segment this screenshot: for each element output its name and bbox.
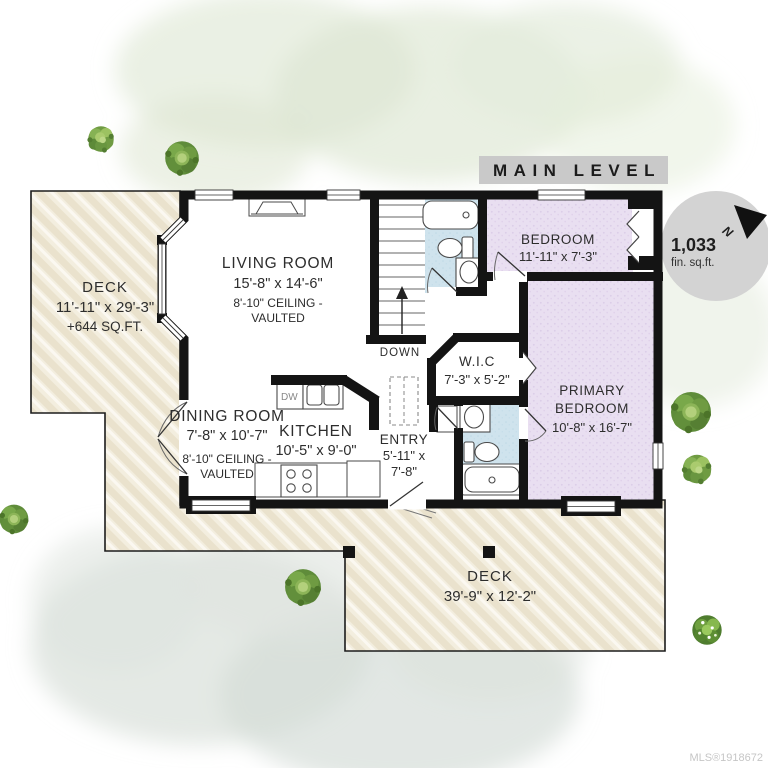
wic-dims: 7'-3" x 5'-2"	[444, 372, 510, 387]
wic-label: W.I.C	[459, 354, 495, 369]
deck-left-dims: 11'-11" x 29'-3"	[56, 299, 154, 316]
window	[653, 443, 663, 469]
dishwasher: DW	[277, 383, 303, 409]
window	[567, 501, 615, 512]
floorplan-page: N 1,033 fin. sq.ft.	[0, 0, 768, 768]
stairs-down-label: DOWN	[380, 347, 420, 359]
finished-area-unit: fin. sq.ft.	[671, 257, 714, 269]
tree-icon	[692, 615, 721, 644]
entry-dims2: 7'-8"	[391, 464, 417, 479]
kitchen-label: KITCHEN	[279, 423, 353, 440]
bathroom2-sink	[460, 402, 490, 432]
dining-room-ceiling2: VAULTED	[200, 467, 254, 481]
deck-post	[483, 546, 495, 558]
compass: N 1,033 fin. sq.ft.	[661, 191, 768, 301]
primary-bedroom-label2: BEDROOM	[555, 401, 629, 416]
dining-room-dims: 7'-8" x 10'-7"	[186, 428, 267, 444]
window	[538, 190, 585, 200]
bedroom-dims: 11'-11" x 7'-3"	[519, 249, 597, 264]
page-title: MAIN LEVEL	[493, 161, 661, 180]
deck-post	[343, 546, 355, 558]
bedroom-label: BEDROOM	[521, 232, 595, 247]
window	[327, 190, 360, 200]
toilet	[464, 442, 499, 462]
dining-room-label: DINING ROOM	[169, 408, 285, 425]
living-room-label: LIVING ROOM	[222, 255, 334, 272]
bathtub	[423, 201, 478, 229]
deck-left-label: DECK	[82, 279, 128, 296]
primary-bedroom-dims: 10'-8" x 16'-7"	[552, 420, 632, 435]
living-room-ceiling1: 8'-10" CEILING -	[233, 296, 322, 310]
header: MAIN LEVEL	[479, 156, 668, 184]
stove	[281, 465, 317, 497]
kitchen-dims: 10'-5" x 9'-0"	[275, 443, 356, 459]
dining-room-ceiling1: 8'-10" CEILING -	[182, 452, 271, 466]
staircase	[379, 195, 425, 337]
window	[195, 190, 233, 200]
entry-label: ENTRY	[380, 432, 429, 447]
living-room-ceiling2: VAULTED	[251, 311, 305, 325]
toilet	[438, 237, 473, 259]
deck-bottom-dims: 39'-9" x 12'-2"	[444, 588, 536, 605]
finished-area-value: 1,033	[671, 235, 716, 255]
primary-bedroom-label1: PRIMARY	[559, 383, 624, 398]
deck-bottom-label: DECK	[467, 568, 513, 585]
dishwasher-label: DW	[281, 392, 298, 403]
window	[192, 500, 250, 511]
entry-dims1: 5'-11" x	[383, 448, 426, 463]
floorplan-canvas: N 1,033 fin. sq.ft.	[0, 0, 768, 768]
living-room-dims: 15'-8" x 14'-6"	[233, 276, 322, 292]
deck-left-extra: +644 SQ.FT.	[67, 319, 143, 334]
mls-watermark: MLS®1918672	[689, 752, 763, 764]
bathtub	[461, 464, 523, 495]
